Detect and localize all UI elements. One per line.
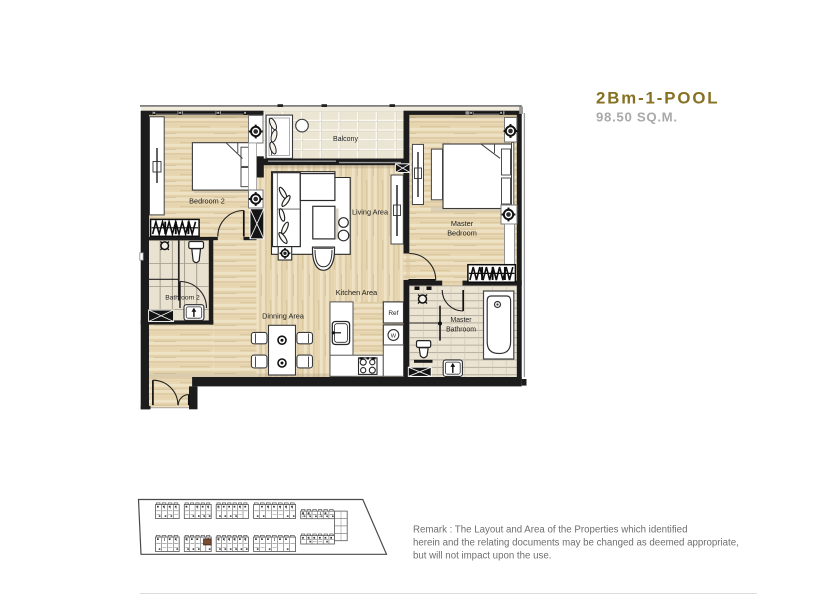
svg-text:Dinning Area: Dinning Area [262,311,305,320]
svg-text:Bedroom 2: Bedroom 2 [189,196,225,205]
svg-text:Remark : The Layout and Area o: Remark : The Layout and Area of the Prop… [413,525,687,536]
svg-text:herein and the relating docume: herein and the relating documents may be… [413,538,739,549]
svg-text:Bathroom: Bathroom [446,326,476,333]
svg-text:Ref: Ref [388,310,398,317]
svg-text:W: W [391,333,397,339]
svg-text:Kitchen Area: Kitchen Area [336,288,378,297]
svg-text:Master: Master [451,219,474,228]
svg-text:Bathroom 2: Bathroom 2 [165,294,200,301]
svg-text:Master: Master [450,317,472,324]
svg-text:98.50 SQ.M.: 98.50 SQ.M. [596,109,678,124]
svg-text:2Bm-1-POOL: 2Bm-1-POOL [596,89,719,108]
svg-text:Living Area: Living Area [352,208,389,217]
svg-text:but will not impact upon the u: but will not impact upon the use. [413,551,551,562]
svg-text:Balcony: Balcony [333,136,358,143]
svg-text:Bedroom: Bedroom [447,228,477,237]
